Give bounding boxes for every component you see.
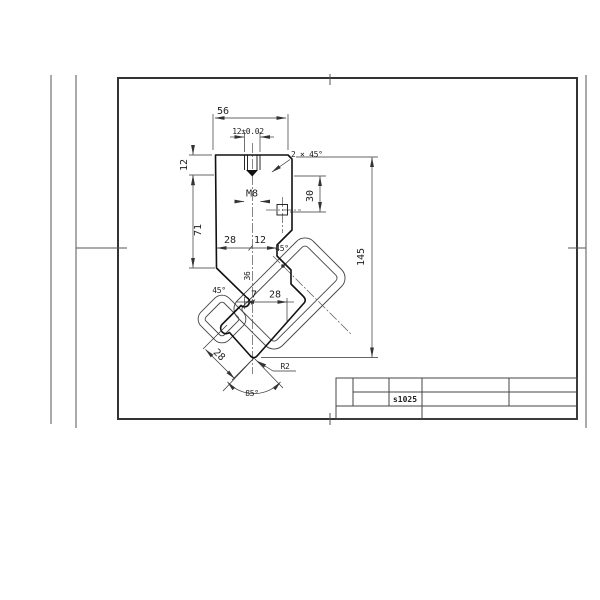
centerlines [253, 143, 353, 374]
dim-body-height-label: 71 [193, 224, 204, 236]
dim-square-depth-label: 30 [305, 190, 316, 202]
reference-point-marker [281, 264, 285, 268]
dim-left-half-label: 28 [224, 235, 236, 246]
dim-slope-angle-label: 45° [212, 286, 226, 295]
punch-body [216, 155, 306, 358]
drill-point [246, 170, 258, 177]
dim-tang-height-label: 12 [179, 159, 190, 171]
dim-ear-width-label: 28 [211, 347, 227, 363]
dim-tip-right-label: 28 [269, 290, 281, 301]
dim-chamfer-label: 2 × 45° [291, 150, 323, 159]
drawing-frame [118, 78, 577, 419]
dim-total-height-label: 145 [356, 248, 367, 266]
dimension-labels: 56 12±0.02 2 × 45° 12 71 M8 30 145 28 12… [179, 106, 367, 398]
dim-tip-radius-label: R2 [280, 362, 290, 371]
dim-top-width-label: 56 [217, 106, 229, 117]
dim-vee-angle-label: 85° [245, 389, 259, 398]
dim-tip-left-label: 7 [251, 290, 257, 301]
part-code-label: s1025 [393, 395, 417, 404]
dim-slot-width-label: 12±0.02 [232, 127, 264, 136]
title-block: s1025 [336, 378, 577, 419]
dim-thread-label: M8 [246, 189, 258, 200]
sheet-frame [51, 74, 586, 428]
dim-center-offset-label: 12 [254, 235, 266, 246]
part-outline [216, 155, 306, 358]
dim-notch-angle-label: 45° [275, 244, 289, 253]
dim-diagonal-label: 36 [243, 271, 252, 281]
drawing-sheet: s1025 [0, 0, 600, 600]
title-block-outline [336, 378, 577, 419]
technical-drawing-canvas: s1025 [0, 0, 600, 600]
